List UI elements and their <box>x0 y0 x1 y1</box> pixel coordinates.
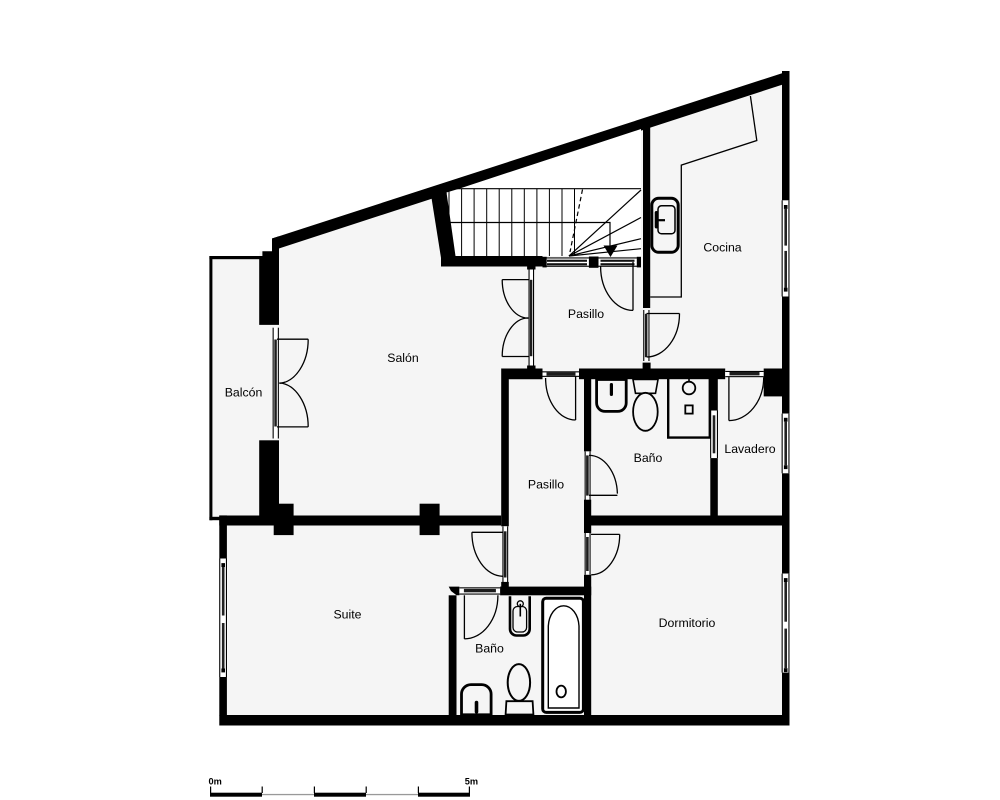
svg-text:Pasillo: Pasillo <box>528 478 564 492</box>
svg-text:0m: 0m <box>209 777 222 787</box>
svg-text:Balcón: Balcón <box>225 386 263 400</box>
svg-text:5m: 5m <box>465 777 478 787</box>
svg-text:Cocina: Cocina <box>703 241 741 255</box>
svg-text:Baño: Baño <box>634 451 663 465</box>
svg-text:Salón: Salón <box>387 351 419 365</box>
svg-text:Baño: Baño <box>475 642 504 656</box>
svg-text:Suite: Suite <box>333 608 361 622</box>
svg-text:Lavadero: Lavadero <box>724 442 775 456</box>
svg-text:Dormitorio: Dormitorio <box>659 616 716 630</box>
svg-text:Pasillo: Pasillo <box>568 307 604 321</box>
